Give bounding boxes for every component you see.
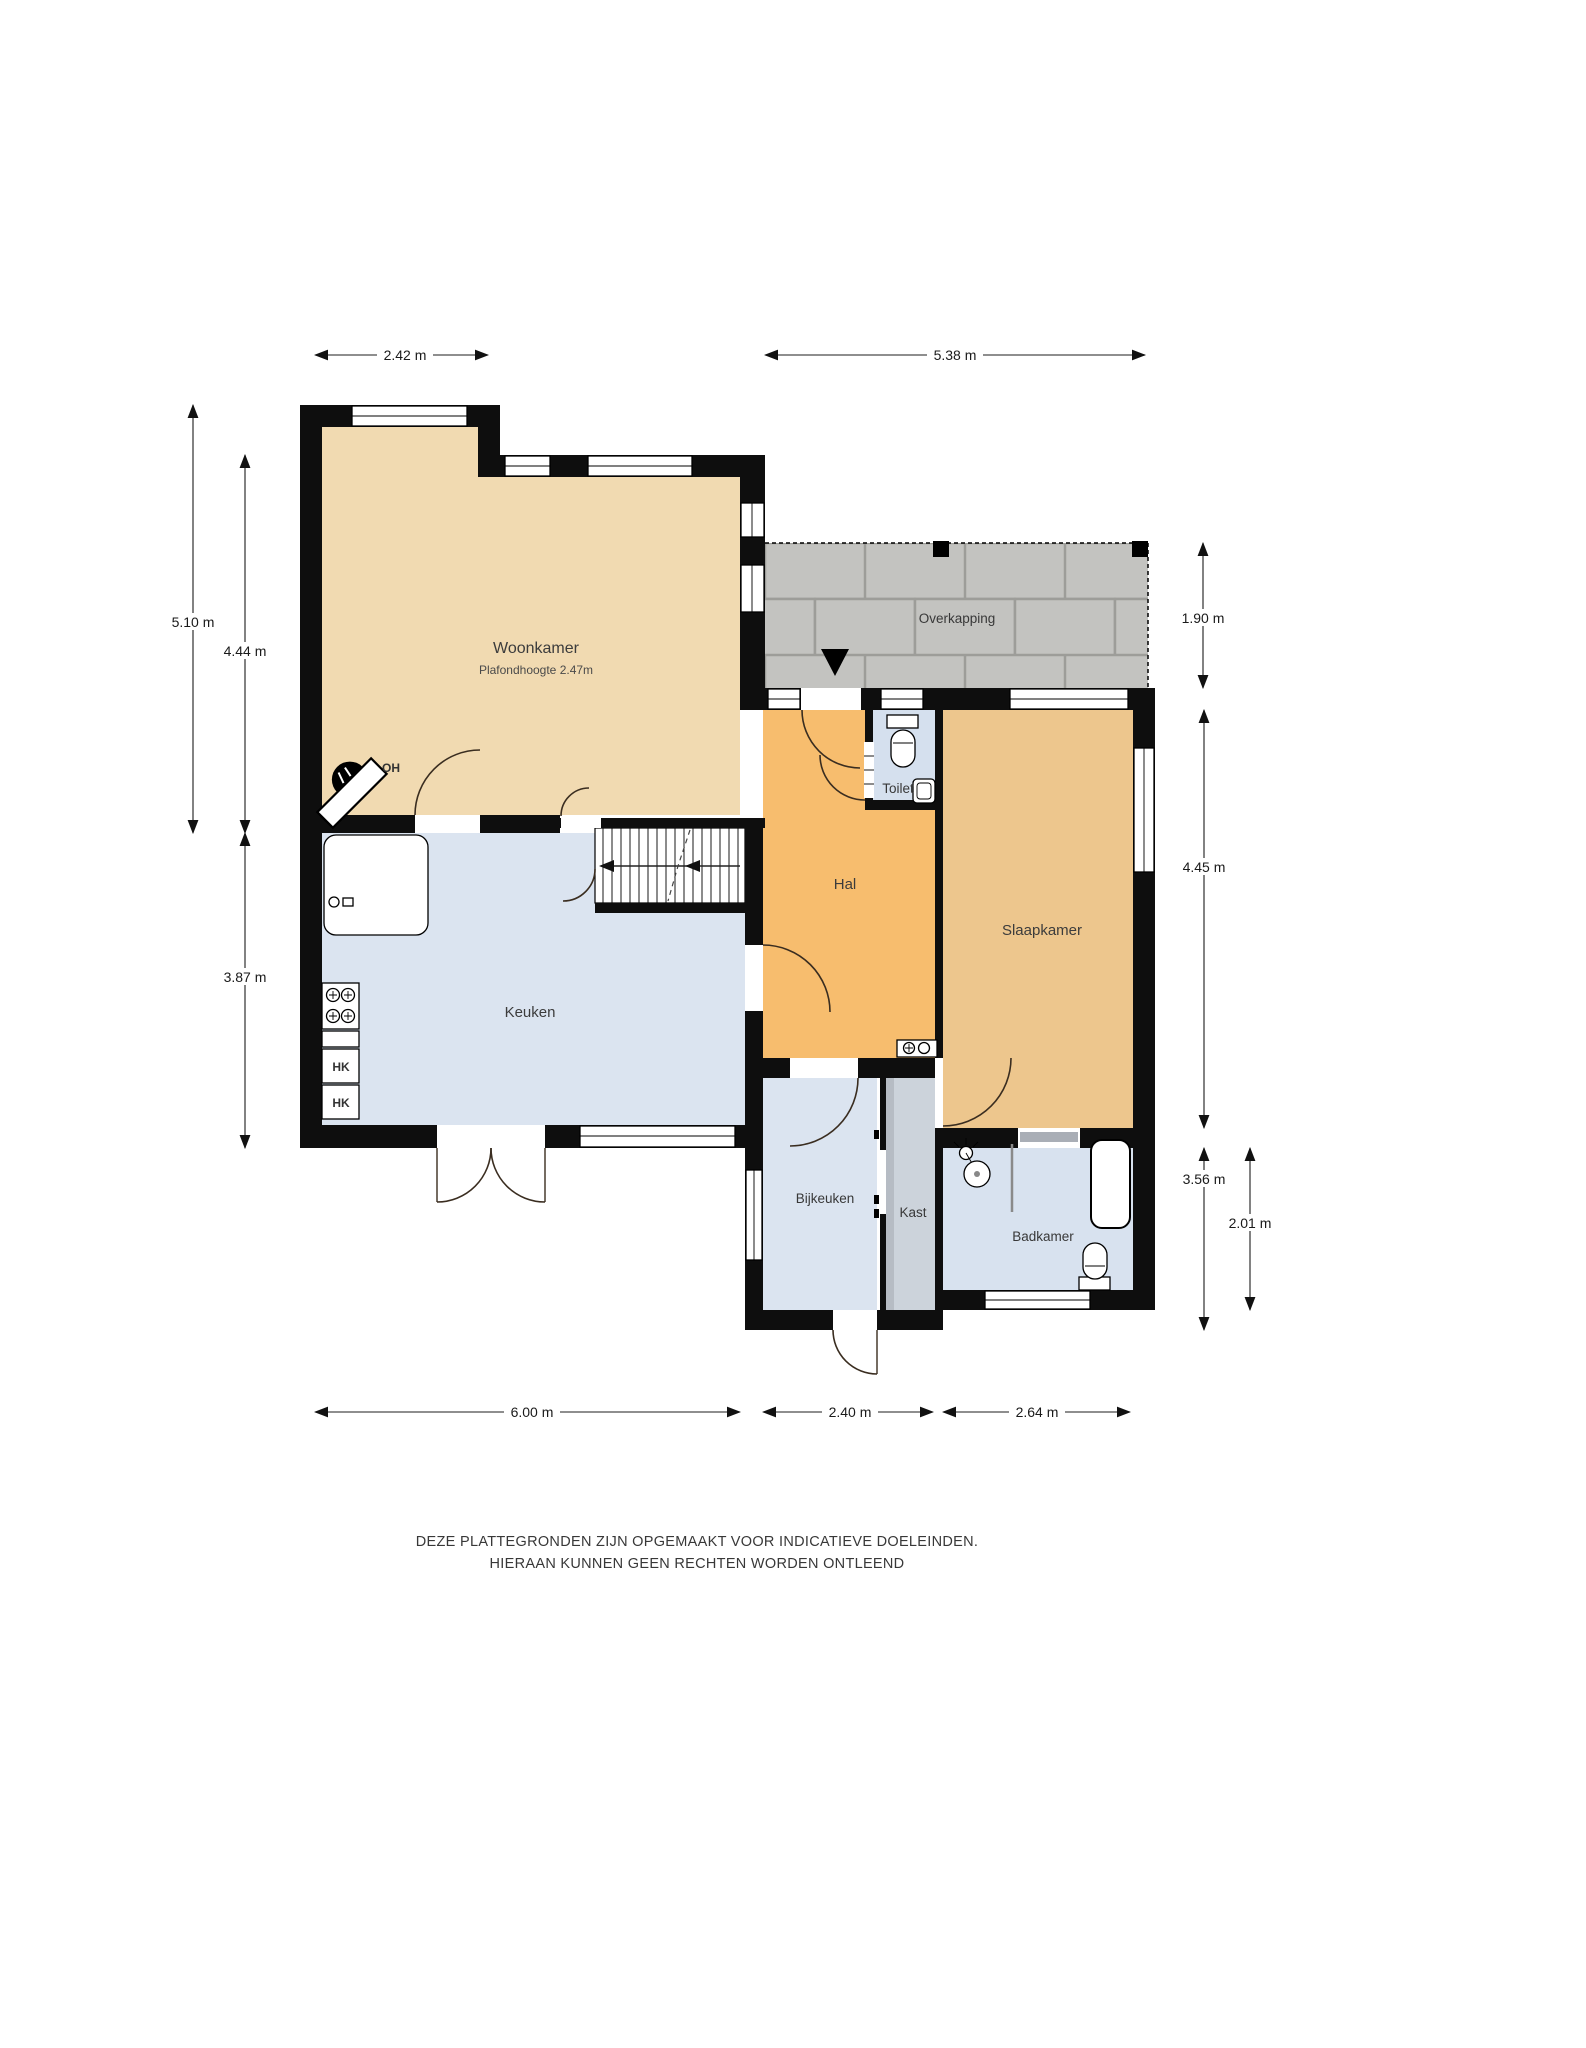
door-mark bbox=[874, 1209, 879, 1218]
door-arc bbox=[491, 1148, 545, 1202]
garden-door-opening bbox=[437, 1125, 545, 1148]
dim-top-woonkamer: 2.42 m bbox=[384, 347, 427, 363]
dim-left-inner: 4.44 m bbox=[224, 643, 267, 659]
disclaimer: DEZE PLATTEGRONDEN ZIJN OPGEMAAKT VOOR I… bbox=[416, 1534, 978, 1572]
entrance-door-opening bbox=[801, 688, 861, 710]
cabinet bbox=[322, 1031, 359, 1047]
dim-left-outer: 5.10 m bbox=[172, 614, 215, 630]
dim-bottom-badkamer: 2.64 m bbox=[1016, 1404, 1059, 1420]
door-mark bbox=[874, 1130, 879, 1139]
keuken-door-opening bbox=[745, 945, 763, 1011]
label-cabinet-hk: HK bbox=[332, 1060, 350, 1074]
canopy-post bbox=[933, 541, 949, 557]
window bbox=[580, 1126, 735, 1147]
kast-door-opening bbox=[880, 1150, 886, 1214]
stove-icon bbox=[322, 983, 359, 1029]
label-fireplace: OH bbox=[382, 761, 400, 775]
wall bbox=[595, 903, 745, 913]
label-cabinet-hk: HK bbox=[332, 1096, 350, 1110]
toilet-icon bbox=[887, 715, 918, 767]
bathtub-icon bbox=[1091, 1140, 1130, 1228]
slaapkamer-door-opening bbox=[935, 1058, 943, 1128]
dim-right-badkamer: 2.01 m bbox=[1229, 1215, 1272, 1231]
canopy-post bbox=[1132, 541, 1148, 557]
wall bbox=[935, 1148, 943, 1310]
label-slaapkamer: Slaapkamer bbox=[1002, 922, 1082, 939]
sink-icon bbox=[324, 835, 428, 935]
label-overkapping: Overkapping bbox=[919, 611, 996, 626]
radiator-icon bbox=[897, 1040, 937, 1057]
dim-left-keuken: 3.87 m bbox=[224, 969, 267, 985]
disclaimer-line-2: HIERAAN KUNNEN GEEN RECHTEN WORDEN ONTLE… bbox=[490, 1556, 905, 1572]
door-arc bbox=[833, 1330, 877, 1374]
label-woonkamer: Woonkamer bbox=[493, 640, 580, 657]
floorplan-page: Woonkamer Plafondhoogte 2.47m Keuken Hal… bbox=[0, 0, 1586, 2048]
disclaimer-line-1: DEZE PLATTEGRONDEN ZIJN OPGEMAAKT VOOR I… bbox=[416, 1534, 978, 1550]
bijkeuken-door-opening bbox=[790, 1058, 858, 1078]
label-hal: Hal bbox=[834, 876, 857, 893]
label-toilet: Toilet bbox=[882, 781, 914, 796]
room-slaapkamer bbox=[943, 710, 1133, 1128]
backdoor-opening bbox=[833, 1310, 877, 1330]
toilet-icon bbox=[1079, 1243, 1110, 1290]
badkamer-door-threshold bbox=[1020, 1132, 1078, 1142]
dim-bottom-keuken: 6.00 m bbox=[511, 1404, 554, 1420]
woonkamer-door-opening bbox=[415, 815, 480, 833]
dim-bottom-bijkeuken: 2.40 m bbox=[829, 1404, 872, 1420]
stairs bbox=[595, 828, 745, 903]
label-bijkeuken: Bijkeuken bbox=[796, 1191, 855, 1206]
label-kast: Kast bbox=[899, 1205, 926, 1220]
window bbox=[741, 503, 764, 537]
label-woonkamer-ceiling: Plafondhoogte 2.47m bbox=[479, 663, 593, 677]
wall bbox=[300, 405, 322, 1148]
dim-top-overkapping: 5.38 m bbox=[934, 347, 977, 363]
dim-right-bijkeuken: 3.56 m bbox=[1183, 1171, 1226, 1187]
dim-right-overkapping: 1.90 m bbox=[1182, 610, 1225, 626]
dim-right-slaapkamer: 4.45 m bbox=[1183, 859, 1226, 875]
washbasin-icon bbox=[913, 779, 935, 803]
door-mark bbox=[874, 1195, 879, 1204]
label-keuken: Keuken bbox=[505, 1004, 556, 1021]
floorplan-drawing: Woonkamer Plafondhoogte 2.47m Keuken Hal… bbox=[0, 0, 1586, 2048]
room-woonkamer bbox=[322, 427, 740, 815]
window bbox=[741, 565, 764, 612]
wall-shadow bbox=[886, 1078, 894, 1330]
label-badkamer: Badkamer bbox=[1012, 1229, 1074, 1244]
stairs-door-opening bbox=[561, 818, 601, 828]
door-arc bbox=[437, 1148, 491, 1202]
